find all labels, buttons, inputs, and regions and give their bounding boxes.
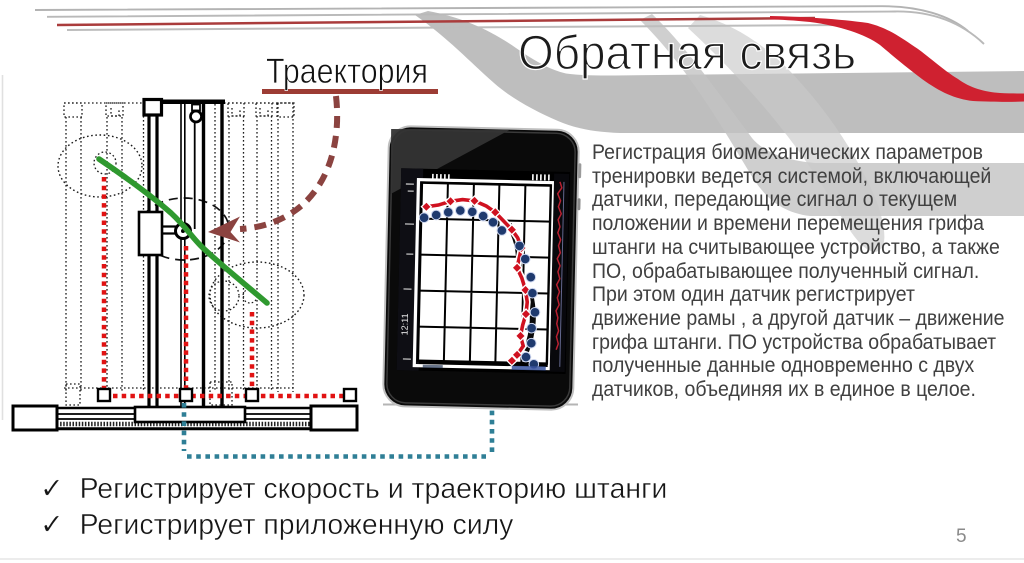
- svg-text:12:11: 12:11: [399, 313, 409, 335]
